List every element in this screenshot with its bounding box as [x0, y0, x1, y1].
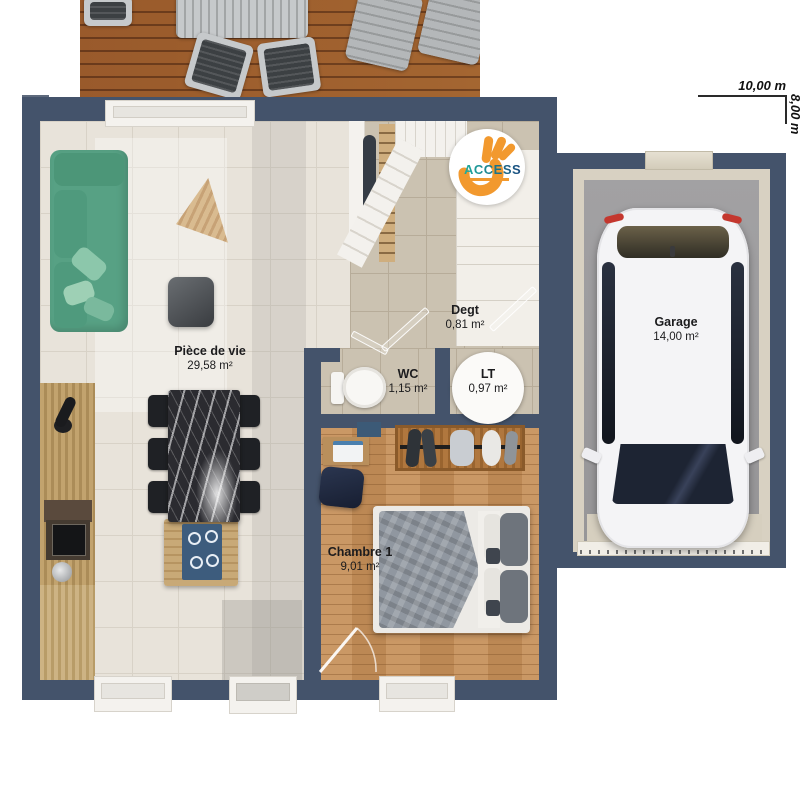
cooktop-ring — [188, 532, 201, 545]
kitchen-sink — [46, 520, 90, 560]
room-label-garage: Garage 14,00 m² — [626, 314, 726, 345]
ottoman — [168, 277, 214, 327]
patio-chair — [257, 36, 322, 97]
dimension-width-line — [698, 95, 787, 97]
kitchen-sink-basin — [52, 524, 86, 556]
room-area: 14,00 m² — [626, 330, 726, 345]
patio-door-bottom — [229, 676, 297, 714]
patio-chair — [183, 31, 254, 97]
builder-logo: ACCESS — [449, 129, 525, 205]
room-name: Degt — [415, 302, 515, 318]
bed-pillow-large — [500, 513, 528, 566]
terrace-deck — [80, 0, 480, 97]
car-side-glass-left — [602, 262, 615, 444]
window-pane — [113, 106, 247, 118]
hanging-clothes — [450, 430, 474, 466]
desk-chair — [318, 466, 365, 509]
storage-box — [357, 422, 381, 437]
cabinet-shelf-line — [457, 264, 539, 265]
window-bedroom — [379, 676, 455, 712]
room-name: WC — [368, 366, 448, 382]
patio-chair-seat — [191, 39, 247, 94]
cooktop-ring — [206, 554, 219, 567]
builder-logo-text: ACCESS — [464, 162, 521, 177]
interior-wall — [304, 348, 340, 362]
room-area: 9,01 m² — [308, 560, 412, 575]
patio-chair — [84, 0, 132, 26]
window-pane — [101, 683, 165, 699]
dimension-height-line — [785, 95, 787, 124]
cooktop-ring — [205, 530, 218, 543]
patio-table — [176, 0, 308, 38]
dimension-height-label: 8,00 m — [788, 94, 800, 158]
bed-cushion — [486, 548, 500, 564]
window-bottom-left — [94, 676, 172, 712]
bed-pillow-large — [500, 570, 528, 623]
car-side-glass-right — [731, 262, 744, 444]
floor-shading — [252, 121, 306, 680]
cooktop-ring — [190, 556, 203, 569]
room-label-chambre-1: Chambre 1 9,01 m² — [308, 544, 412, 575]
bed-cushion — [486, 600, 500, 616]
room-label-lt: LT 0,97 m² — [438, 366, 538, 397]
doormat — [222, 600, 302, 680]
door-pane — [236, 683, 290, 701]
room-name: Chambre 1 — [308, 544, 412, 560]
room-name: LT — [438, 366, 538, 382]
room-label-degt: Degt 0,81 m² — [415, 302, 515, 333]
hanging-clothes — [482, 430, 501, 466]
floor-plan-canvas: 10,00 m 8,00 m — [0, 0, 800, 800]
room-label-wc: WC 1,15 m² — [368, 366, 448, 397]
kitchen-tap — [52, 562, 72, 582]
cabinet-shelf-line — [457, 218, 539, 219]
builder-logo-underline — [465, 178, 509, 181]
sofa-back-cushion — [54, 153, 124, 186]
room-area: 29,58 m² — [160, 359, 260, 374]
garage-door-track-marks — [580, 550, 767, 554]
patio-chair-seat — [90, 2, 126, 20]
patio-chair-seat — [263, 43, 314, 91]
kitchen-hob-panel — [44, 500, 92, 522]
cabinet-shelf-line — [457, 246, 539, 247]
room-name: Garage — [626, 314, 726, 330]
car-antenna — [670, 246, 675, 257]
room-area: 0,97 m² — [438, 382, 538, 397]
dining-table-marble — [168, 390, 240, 522]
kitchen-counter-lower — [40, 585, 95, 680]
room-area: 0,81 m² — [415, 318, 515, 333]
bedroom-door-swing — [316, 616, 380, 680]
sun-lounger — [344, 0, 423, 72]
car-windshield — [612, 444, 734, 504]
laptop — [333, 441, 363, 462]
room-name: Pièce de vie — [160, 343, 260, 359]
sun-lounger — [417, 0, 480, 66]
dimension-width-label: 10,00 m — [698, 78, 786, 93]
window-living-top — [105, 100, 255, 127]
window-pane — [386, 683, 448, 699]
room-label-piece-de-vie: Pièce de vie 29,58 m² — [160, 343, 260, 374]
room-area: 1,15 m² — [368, 382, 448, 397]
garage-back-door — [645, 151, 713, 170]
